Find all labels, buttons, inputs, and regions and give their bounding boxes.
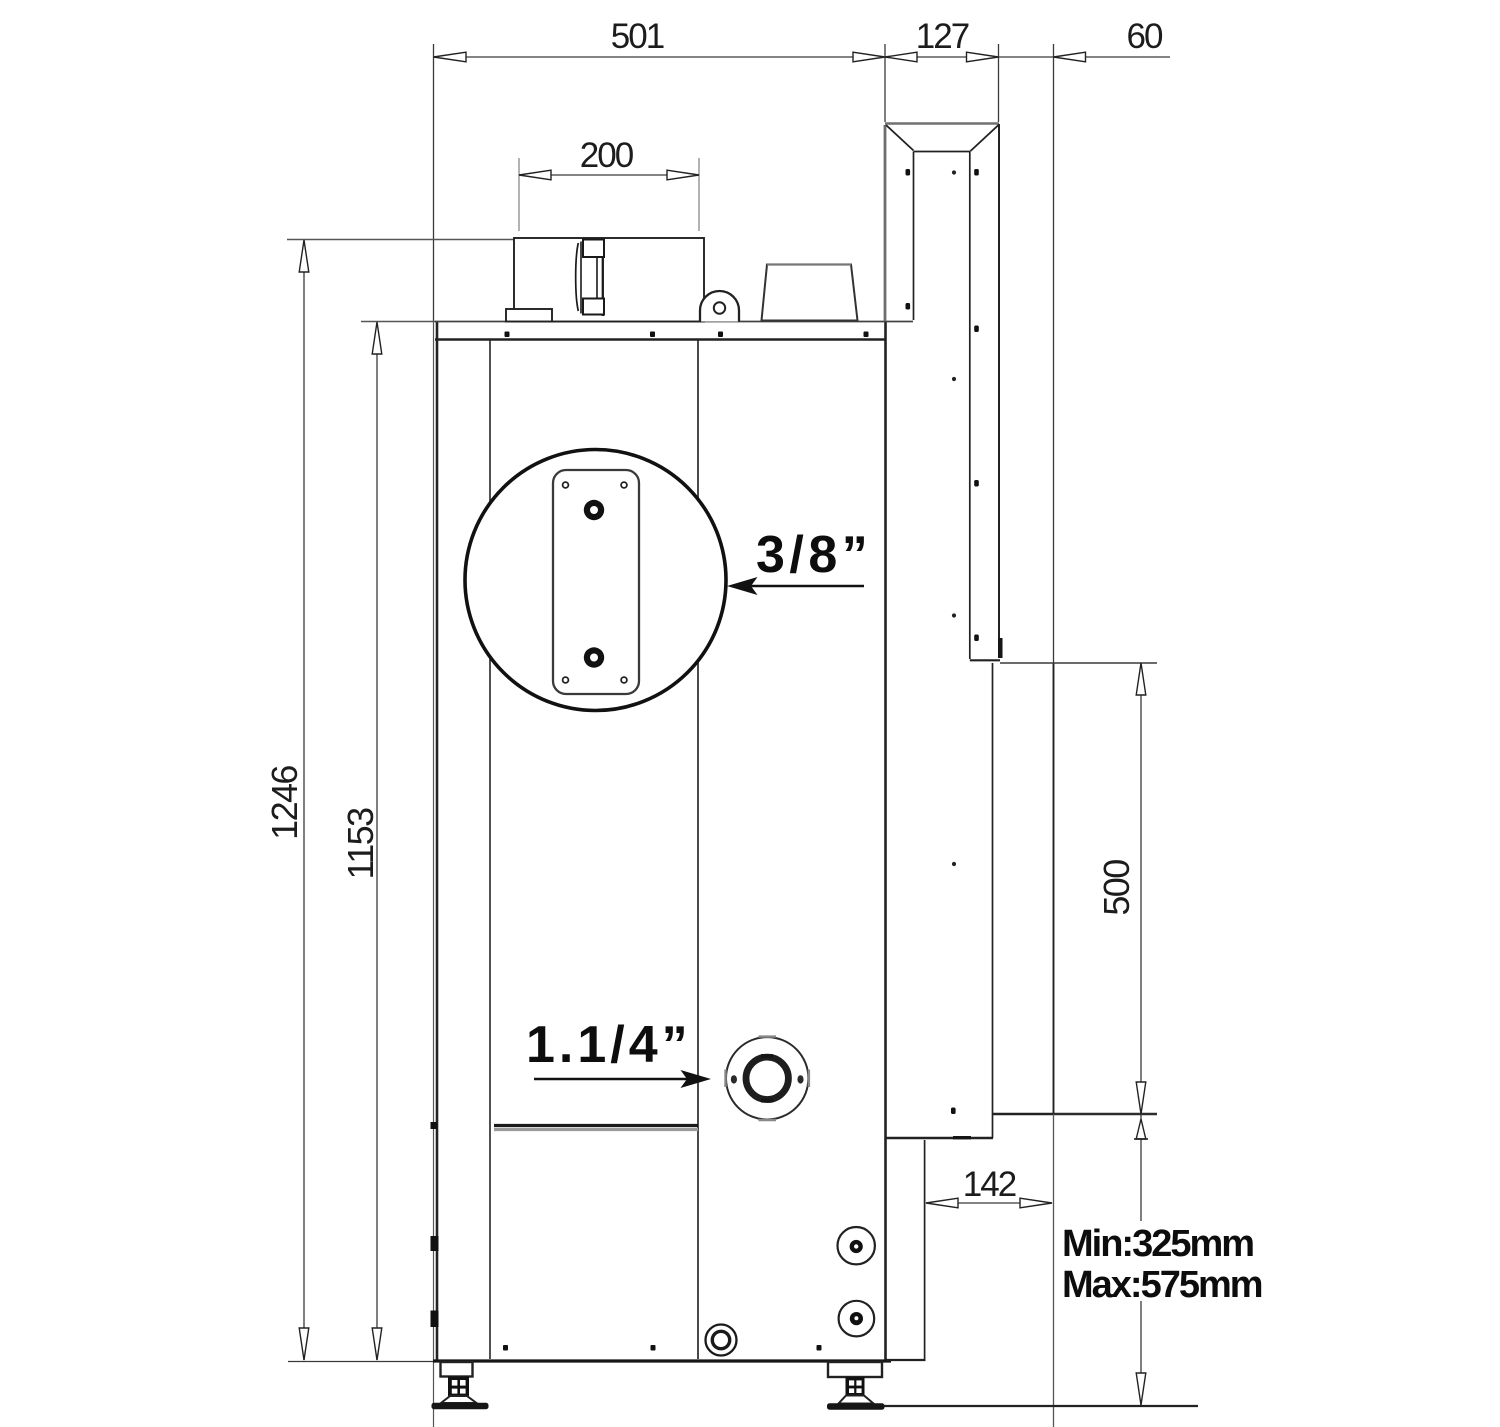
svg-text:3/8”: 3/8” bbox=[756, 526, 872, 584]
svg-text:Max:575mm: Max:575mm bbox=[1062, 1264, 1262, 1306]
svg-text:Min:325mm: Min:325mm bbox=[1062, 1223, 1253, 1265]
svg-text:127: 127 bbox=[916, 17, 969, 56]
svg-text:500: 500 bbox=[1096, 860, 1137, 916]
svg-text:200: 200 bbox=[580, 136, 634, 175]
svg-text:60: 60 bbox=[1127, 17, 1163, 56]
svg-text:501: 501 bbox=[611, 17, 664, 56]
svg-text:142: 142 bbox=[963, 1165, 1016, 1204]
svg-text:1153: 1153 bbox=[340, 808, 381, 880]
svg-text:1246: 1246 bbox=[264, 766, 305, 840]
svg-text:1.1/4”: 1.1/4” bbox=[526, 1016, 692, 1074]
